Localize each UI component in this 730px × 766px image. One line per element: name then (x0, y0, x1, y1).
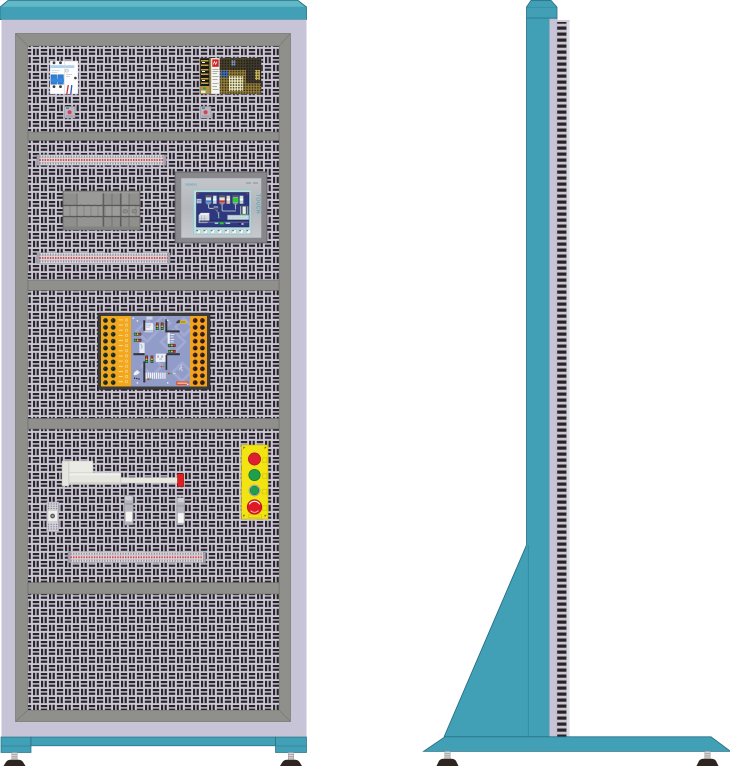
svg-text:SIEMENS: SIEMENS (185, 184, 197, 187)
svg-text:TOUCH: TOUCH (255, 194, 261, 214)
